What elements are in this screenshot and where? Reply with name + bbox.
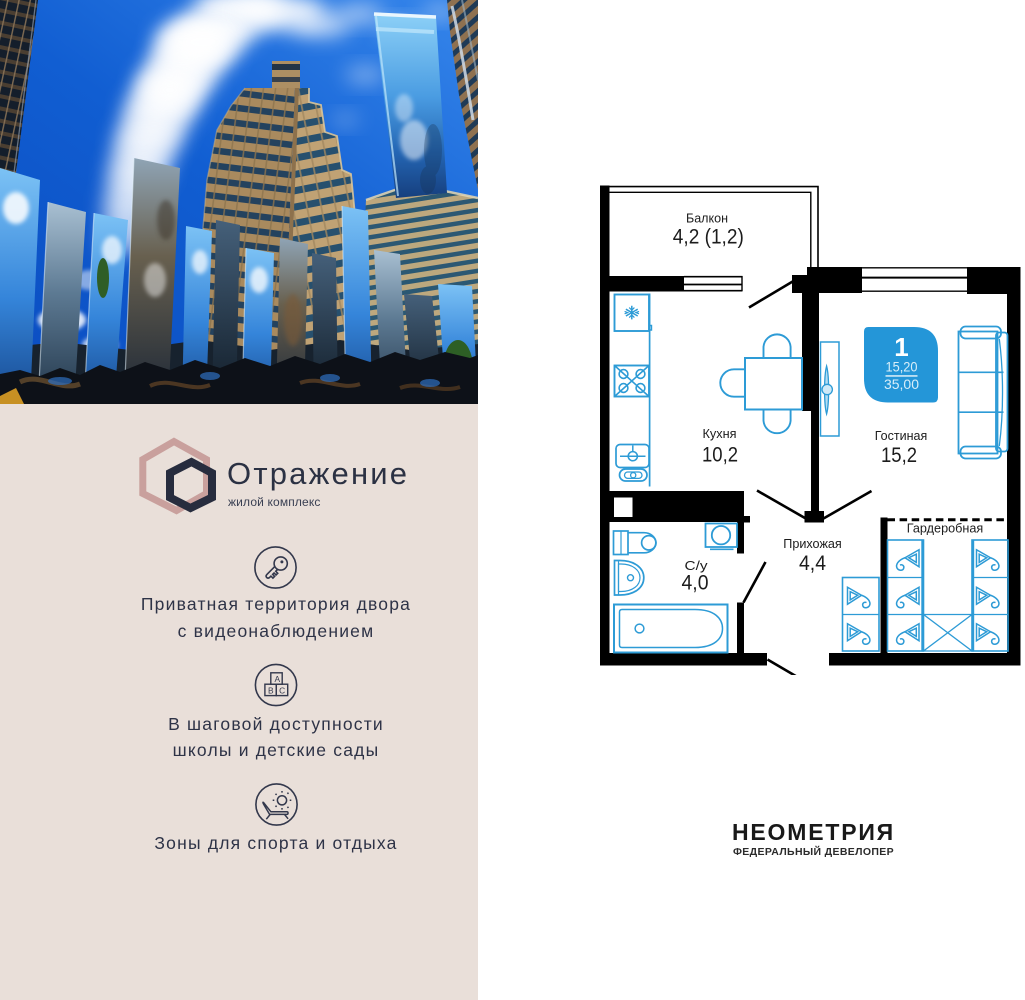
svg-text:15,2: 15,2	[881, 444, 917, 467]
svg-text:Гостиная: Гостиная	[875, 429, 928, 443]
svg-text:B: B	[268, 685, 274, 695]
svg-text:Прихожая: Прихожая	[783, 537, 842, 551]
svg-text:Гардеробная: Гардеробная	[907, 522, 984, 536]
svg-text:Кухня: Кухня	[703, 427, 737, 441]
svg-text:15,20: 15,20	[886, 359, 918, 375]
svg-text:A: A	[275, 674, 281, 684]
svg-text:Балкон: Балкон	[686, 212, 728, 226]
svg-text:10,2: 10,2	[702, 444, 738, 467]
svg-text:C: C	[279, 686, 285, 696]
svg-text:4,2 (1,2): 4,2 (1,2)	[673, 226, 744, 249]
svg-text:35,00: 35,00	[884, 376, 919, 392]
svg-text:4,4: 4,4	[799, 552, 826, 575]
svg-text:4,0: 4,0	[682, 572, 709, 595]
svg-text:1: 1	[894, 332, 908, 362]
